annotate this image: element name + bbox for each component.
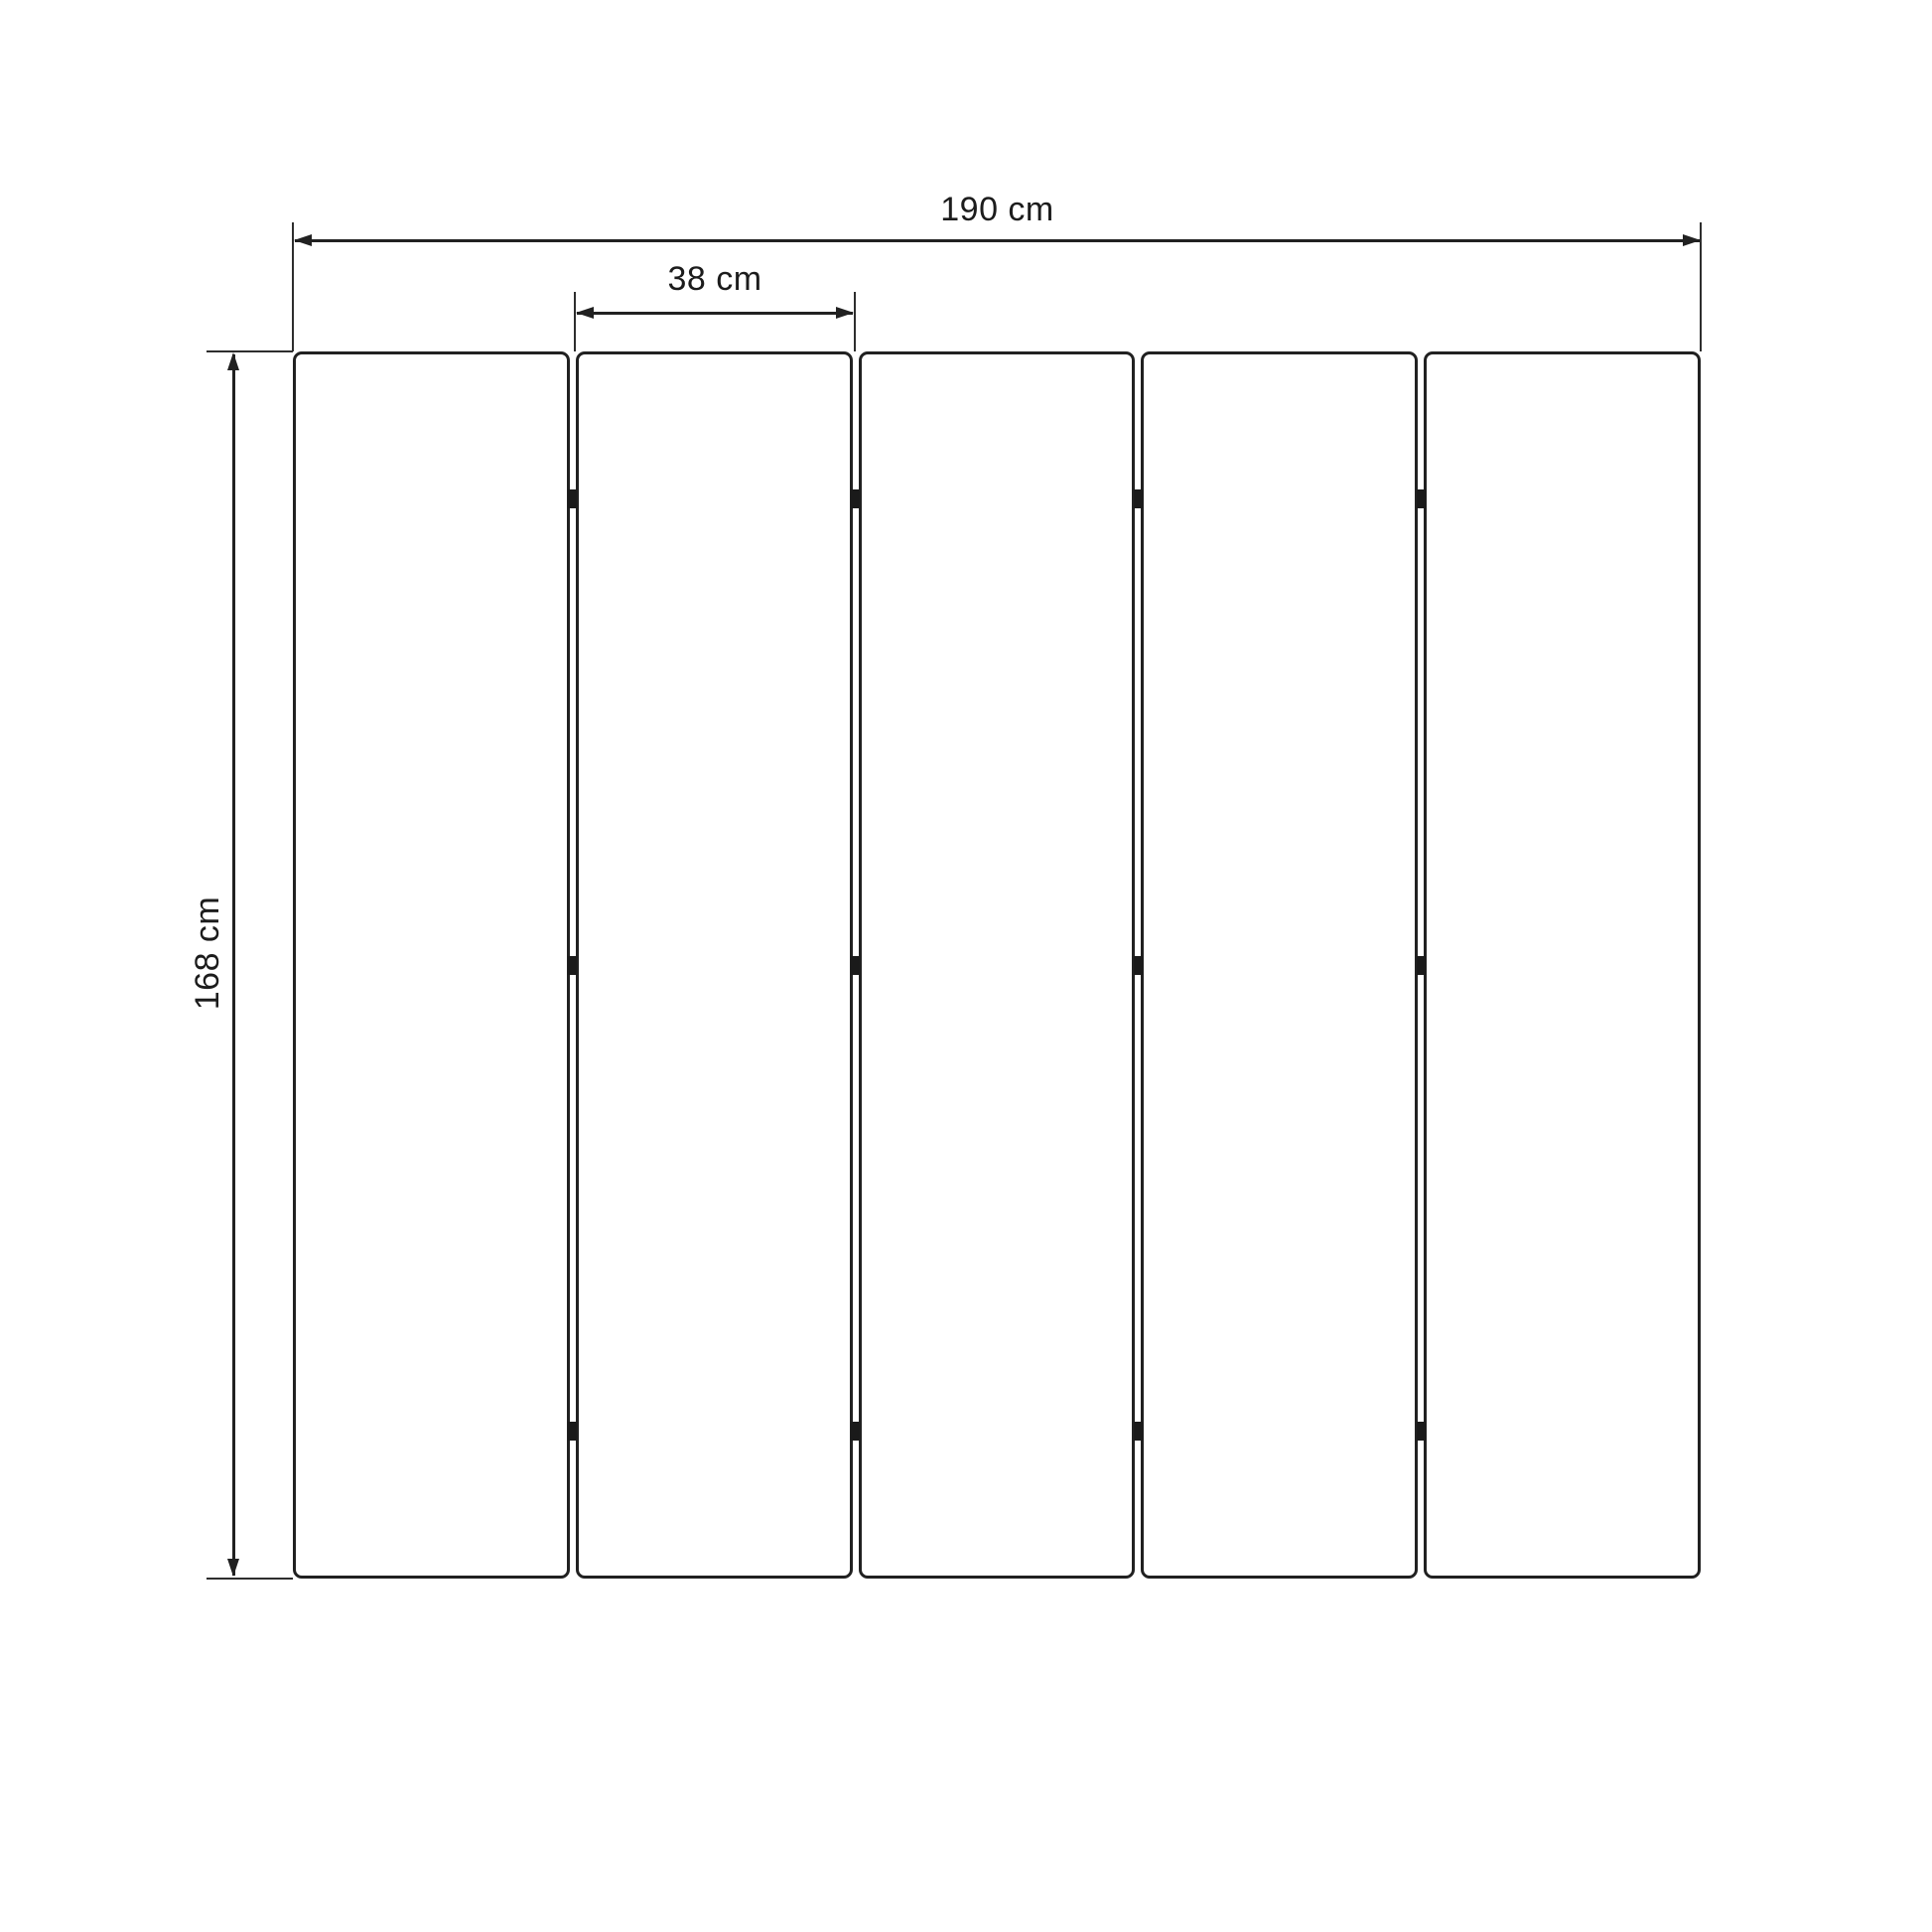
hinge <box>1417 956 1426 975</box>
hinge <box>1134 956 1143 975</box>
height-dimension-line <box>232 354 235 1576</box>
hinge <box>851 956 860 975</box>
hinge <box>1134 1422 1143 1441</box>
height-dimension-label: 168 cm <box>190 897 225 1011</box>
hinge <box>1417 1422 1426 1441</box>
panel-width-dimension-line <box>577 312 853 315</box>
hinge <box>851 1422 860 1441</box>
extension-line-panel-left <box>574 292 576 351</box>
panel-width-dimension-label: 38 cm <box>577 261 853 297</box>
extension-line-bottom <box>207 1578 293 1580</box>
total-width-dimension-line <box>295 239 1700 242</box>
total-width-dimension-label: 190 cm <box>295 192 1700 227</box>
arrow-up-icon <box>227 352 239 370</box>
hinge <box>1417 489 1426 508</box>
screen-panel <box>576 351 853 1579</box>
extension-line-panel-right <box>854 292 856 351</box>
arrow-right-icon <box>836 307 854 319</box>
hinge <box>568 956 577 975</box>
hinge <box>568 1422 577 1441</box>
hinge <box>851 489 860 508</box>
hinge <box>568 489 577 508</box>
arrow-down-icon <box>227 1559 239 1577</box>
arrow-left-icon <box>294 234 312 246</box>
folding-screen-dimension-diagram: 190 cm 38 cm 168 cm <box>0 0 1932 1932</box>
arrow-right-icon <box>1683 234 1701 246</box>
screen-panel <box>1141 351 1418 1579</box>
extension-line-top <box>207 350 293 352</box>
panels-row <box>293 351 1701 1579</box>
arrow-left-icon <box>576 307 594 319</box>
hinge <box>1134 489 1143 508</box>
screen-panel <box>859 351 1136 1579</box>
screen-panel <box>293 351 570 1579</box>
screen-panel <box>1424 351 1701 1579</box>
